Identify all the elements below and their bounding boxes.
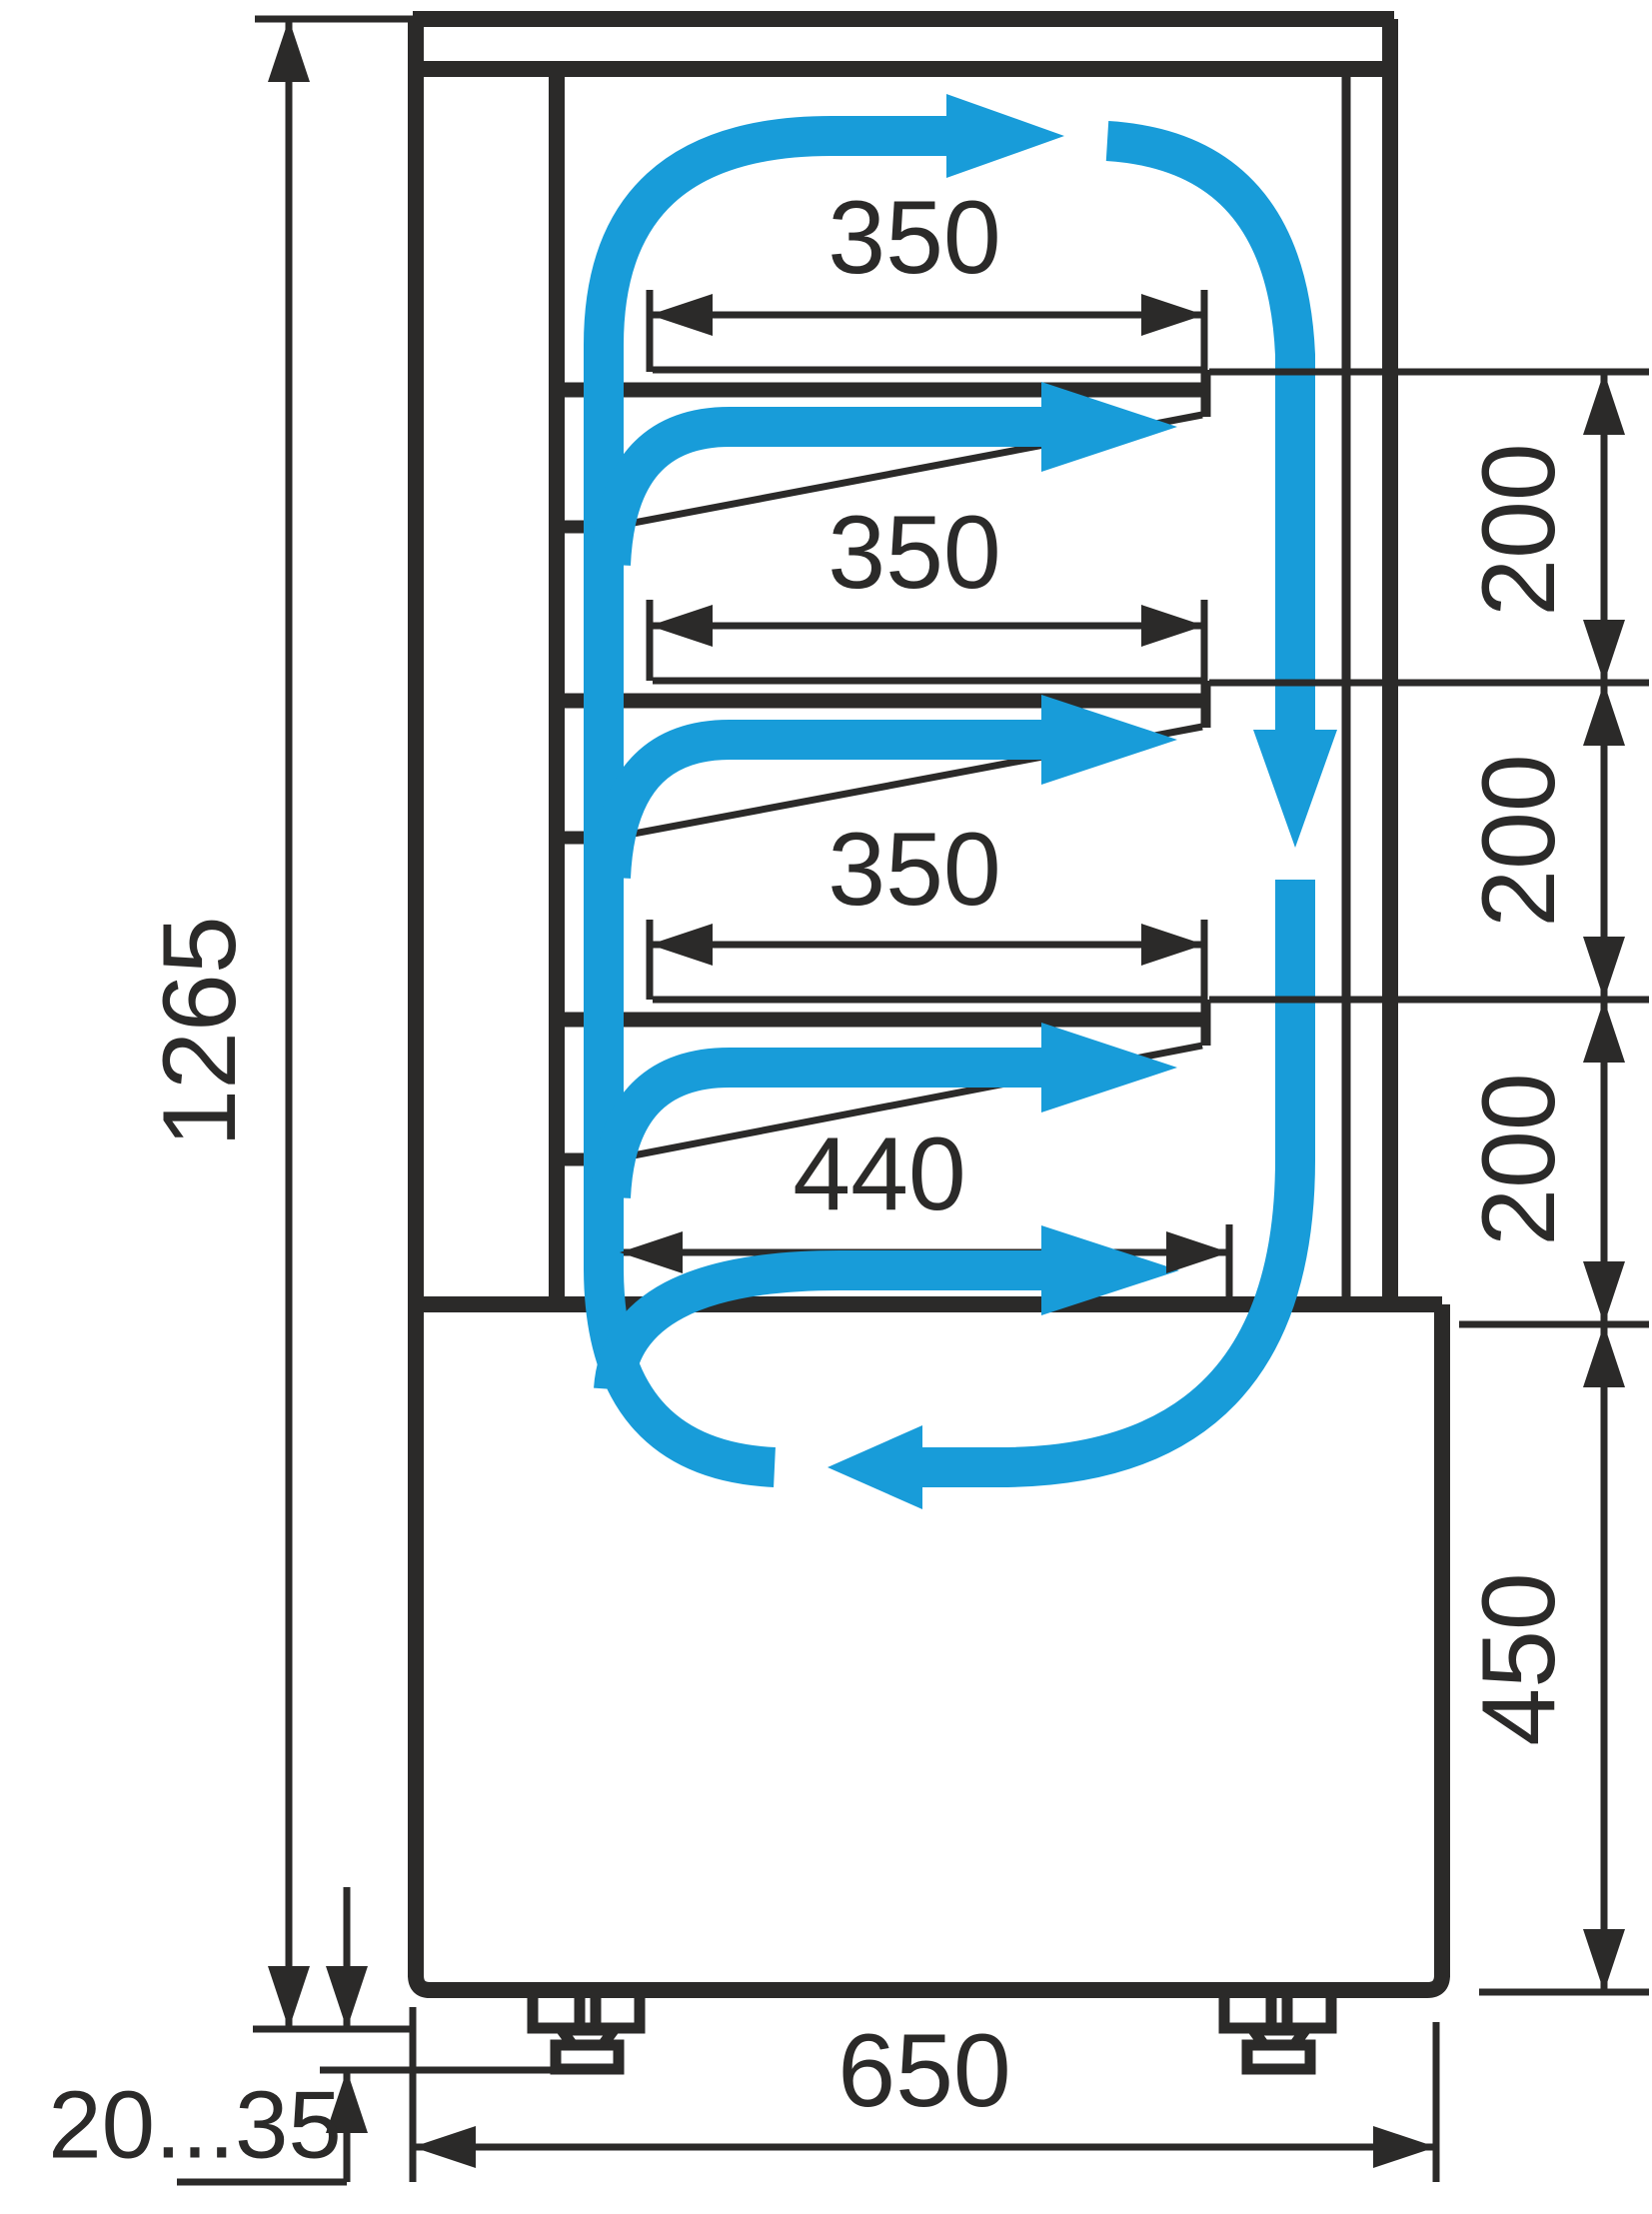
dim-base-height-450: 450 bbox=[1461, 1324, 1649, 1992]
airflow-down-arrow-icon bbox=[1253, 730, 1337, 848]
arrowhead-right-icon bbox=[1141, 605, 1204, 647]
arrowhead-right-icon bbox=[1141, 924, 1204, 966]
dim-350-2-ext bbox=[650, 600, 1204, 728]
arrowhead-down-icon bbox=[1583, 937, 1625, 1000]
arrowhead-down-icon bbox=[1583, 620, 1625, 683]
dim-label-bottom-shelf-depth: 440 bbox=[793, 1116, 966, 1232]
foot-left-plate bbox=[556, 2045, 619, 2069]
arrowhead-down-icon bbox=[326, 1966, 368, 2029]
dim-label-overall-height: 1265 bbox=[142, 916, 258, 1146]
dim-label-shelf-2-depth: 350 bbox=[827, 495, 1001, 611]
arrowhead-right-icon bbox=[1373, 2126, 1436, 2168]
arrowhead-up-icon bbox=[1583, 683, 1625, 746]
arrowhead-up-icon bbox=[268, 19, 310, 82]
arrowhead-right-icon bbox=[1141, 294, 1204, 336]
drawing-canvas: 1265 350 350 350 440 200 2 bbox=[0, 0, 1652, 2214]
dim-shelf-1-350: 350 bbox=[650, 180, 1204, 417]
airflow-front-downflow-lower bbox=[922, 880, 1295, 1467]
foot-right bbox=[1224, 1991, 1331, 2069]
airflow-top-arrow-icon bbox=[946, 94, 1064, 178]
arrowhead-up-icon bbox=[1583, 372, 1625, 435]
arrowhead-left-icon bbox=[650, 924, 713, 966]
dim-label-spacing-3: 200 bbox=[1461, 1073, 1577, 1246]
arrowhead-right-icon bbox=[1166, 1231, 1229, 1273]
airflow-branch-bottom-shelf bbox=[614, 1270, 1041, 1389]
arrowhead-up-icon bbox=[1583, 1000, 1625, 1063]
dim-shelf-2-350: 350 bbox=[650, 495, 1204, 728]
dim-foot-range-20-35: 20...35 bbox=[48, 1887, 618, 2182]
dim-350-1-ext bbox=[650, 290, 1204, 417]
dim-label-spacing-1: 200 bbox=[1461, 443, 1577, 617]
dim-overall-height-1265: 1265 bbox=[142, 19, 413, 2029]
arrowhead-left-icon bbox=[650, 294, 713, 336]
arrowhead-left-icon bbox=[650, 605, 713, 647]
dim-label-shelf-3-depth: 350 bbox=[827, 812, 1001, 928]
foot-left bbox=[533, 1991, 640, 2069]
arrowhead-left-icon bbox=[620, 1231, 683, 1273]
airflow-return-arrow-icon bbox=[827, 1425, 922, 1509]
dim-label-foot-range: 20...35 bbox=[48, 2072, 342, 2179]
foot-right-plate bbox=[1247, 2045, 1310, 2069]
arrowhead-down-icon bbox=[1583, 1929, 1625, 1992]
arrowhead-left-icon bbox=[413, 2126, 476, 2168]
arrowhead-up-icon bbox=[1583, 1324, 1625, 1387]
dim-label-spacing-2: 200 bbox=[1461, 754, 1577, 928]
airflow-branch-3-arrow-icon bbox=[1041, 1023, 1177, 1112]
dim-label-base-height: 450 bbox=[1461, 1572, 1577, 1746]
dim-label-base-depth: 650 bbox=[837, 2013, 1011, 2129]
dim-shelf-3-350: 350 bbox=[650, 812, 1204, 1045]
arrowhead-down-icon bbox=[268, 1966, 310, 2029]
arrowhead-down-icon bbox=[1583, 1261, 1625, 1324]
base-bottom bbox=[416, 1975, 1442, 1990]
dim-label-shelf-1-depth: 350 bbox=[827, 180, 1001, 296]
technical-drawing-display-case-side-section: 1265 350 350 350 440 200 2 bbox=[0, 0, 1652, 2214]
